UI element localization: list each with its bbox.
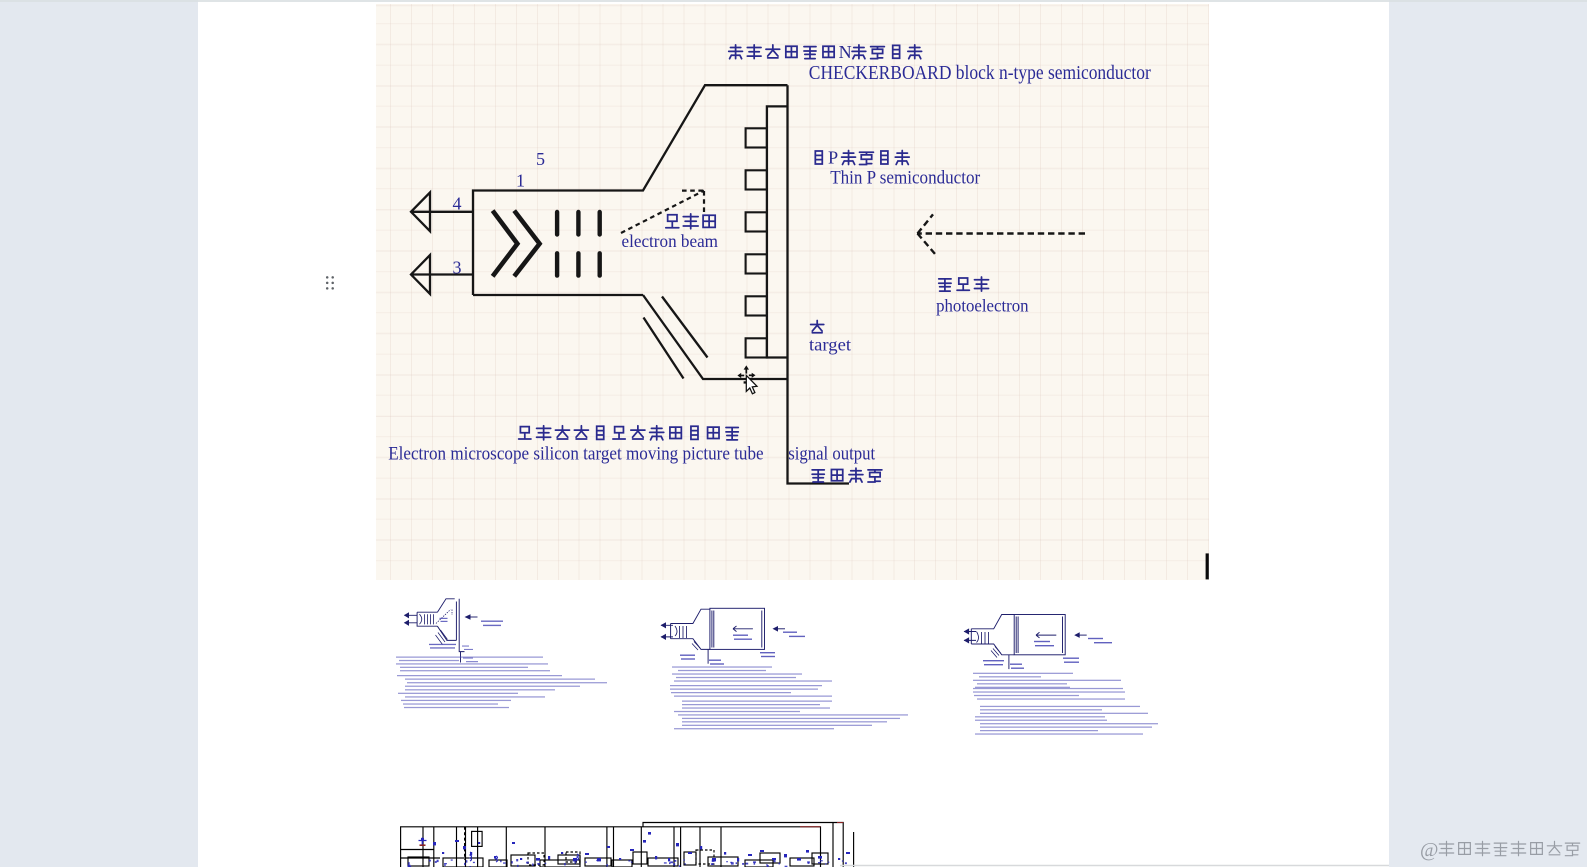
svg-text:electron beam: electron beam — [622, 231, 719, 251]
svg-text:5: 5 — [536, 149, 545, 169]
svg-text:@: @ — [1420, 839, 1438, 861]
svg-text:3: 3 — [453, 258, 462, 278]
svg-text:N: N — [839, 42, 852, 62]
svg-text:P: P — [828, 148, 838, 168]
svg-text:1: 1 — [516, 171, 525, 191]
svg-text:4: 4 — [453, 194, 462, 214]
svg-text:CHECKERBOARD block n-type semi: CHECKERBOARD block n-type semiconductor — [809, 62, 1151, 84]
svg-text:Electron microscope silicon ta: Electron microscope silicon target movin… — [388, 444, 763, 464]
svg-text:photoelectron: photoelectron — [936, 296, 1029, 316]
svg-text:target: target — [809, 335, 851, 355]
svg-text:Thin P semiconductor: Thin P semiconductor — [830, 168, 980, 188]
svg-text:signal output: signal output — [788, 444, 876, 464]
